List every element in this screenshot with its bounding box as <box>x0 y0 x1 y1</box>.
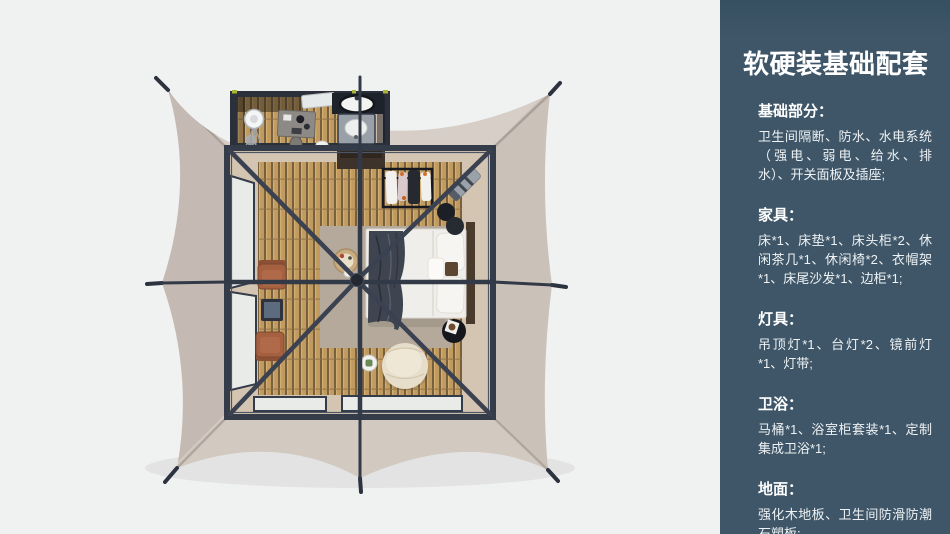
section-heading: 灯具： <box>758 310 932 329</box>
spec-section-bathroom: 卫浴： 马桶*1、浴室柜套装*1、定制集成卫浴*1; <box>758 395 932 458</box>
round-side-cabinet <box>442 319 466 343</box>
bed <box>366 222 475 330</box>
slide: 软硬装基础配套 基础部分： 卫生间隔断、防水、水电系统（强电、弱电、给水、排水）… <box>0 0 950 534</box>
lounge-chair-2 <box>256 332 284 361</box>
floorplan-top-view <box>0 0 720 534</box>
section-body: 马桶*1、浴室柜套装*1、定制集成卫浴*1; <box>758 420 932 458</box>
bathroom-unit <box>230 90 390 149</box>
washstand-cabinet <box>338 114 375 144</box>
spec-section-lighting: 灯具： 吊顶灯*1、台灯*2、镜前灯*1、灯带; <box>758 310 932 373</box>
spec-section-furniture: 家具： 床*1、床垫*1、床头柜*2、休闲茶几*1、休闲椅*2、衣帽架*1、床尾… <box>758 206 932 288</box>
panel-title: 软硬装基础配套 <box>743 50 932 80</box>
section-heading: 卫浴： <box>758 395 932 414</box>
section-body: 强化木地板、卫生间防滑防潮石塑板; <box>758 505 932 534</box>
section-heading: 家具： <box>758 206 932 225</box>
section-heading: 地面： <box>758 480 932 499</box>
section-body: 卫生间隔断、防水、水电系统（强电、弱电、给水、排水）、开关面板及插座; <box>758 127 932 184</box>
wall-mirror <box>301 92 335 108</box>
plant-side-table <box>361 355 377 371</box>
bed-headboard <box>466 222 475 324</box>
spec-section-flooring: 地面： 强化木地板、卫生间防滑防潮石塑板; <box>758 480 932 534</box>
side-table <box>261 299 283 321</box>
spec-panel: 软硬装基础配套 基础部分： 卫生间隔断、防水、水电系统（强电、弱电、给水、排水）… <box>720 0 950 534</box>
vanity-desk <box>277 110 315 138</box>
section-heading: 基础部分： <box>758 102 932 121</box>
section-body: 吊顶灯*1、台灯*2、镜前灯*1、灯带; <box>758 335 932 373</box>
lounge-chair-1 <box>258 260 286 289</box>
bathroom-sink <box>332 93 384 114</box>
section-body: 床*1、床垫*1、床头柜*2、休闲茶几*1、休闲椅*2、衣帽架*1、床尾沙发*1… <box>758 231 932 288</box>
spec-section-basics: 基础部分： 卫生间隔断、防水、水电系统（强电、弱电、给水、排水）、开关面板及插座… <box>758 102 932 184</box>
center-hub <box>351 274 364 287</box>
spec-sections: 基础部分： 卫生间隔断、防水、水电系统（强电、弱电、给水、排水）、开关面板及插座… <box>758 102 932 534</box>
